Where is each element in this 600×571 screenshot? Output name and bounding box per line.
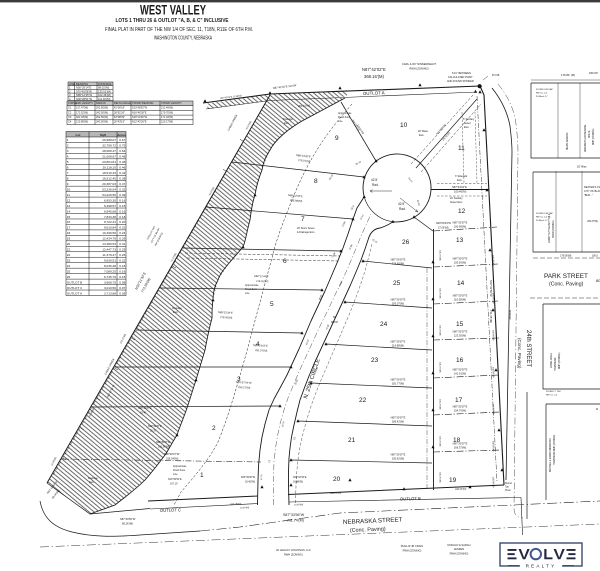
svg-text:10.00'(M): 10.00'(M) [240, 507, 250, 509]
svg-text:OUTLOT B: OUTLOT B [67, 280, 82, 284]
svg-text:0.75: 0.75 [119, 144, 125, 148]
svg-text:2: 2 [212, 425, 216, 432]
svg-text:5' Sanitary: 5' Sanitary [463, 118, 475, 121]
svg-text:CITY OF BLAIR: CITY OF BLAIR [584, 190, 600, 193]
svg-text:Rad.: Rad. [399, 207, 406, 211]
svg-text:S88°39'37"W: S88°39'37"W [164, 452, 180, 456]
svg-text:N87°30'07"E: N87°30'07"E [453, 442, 468, 446]
svg-text:22: 22 [359, 397, 367, 404]
svg-text:365.22'(M): 365.22'(M) [298, 103, 311, 108]
svg-text:"BUR...": "BUR..." [584, 194, 593, 197]
svg-text:CHORD LENGTH: CHORD LENGTH [161, 101, 182, 105]
svg-text:N12°42'26"E: N12°42'26"E [132, 120, 147, 124]
svg-text:6,745.79: 6,745.79 [104, 275, 116, 279]
svg-text:86.26'(M): 86.26'(M) [122, 522, 133, 526]
svg-text:8,722.31: 8,722.31 [104, 220, 116, 224]
svg-text:21: 21 [348, 437, 356, 444]
svg-text:Esm.: Esm. [419, 134, 425, 137]
svg-text:22: 22 [67, 253, 71, 257]
svg-text:0.22: 0.22 [119, 259, 125, 263]
svg-text:711.65'(M): 711.65'(M) [489, 310, 493, 323]
svg-text:Line: Line [338, 120, 343, 123]
svg-text:S02°18'33"E: S02°18'33"E [293, 476, 307, 479]
svg-text:RWH (ZONING): RWH (ZONING) [403, 549, 422, 553]
svg-text:WASHINGTON COUNTY, NEBRASKA: WASHINGTON COUNTY, NEBRASKA [154, 36, 212, 42]
svg-text:Drainage: Drainage [172, 307, 182, 310]
svg-text:N48°09'34"W: N48°09'34"W [436, 222, 452, 225]
svg-text:28°51'26": 28°51'26" [114, 110, 125, 114]
svg-text:53,236.54: 53,236.54 [102, 187, 116, 191]
svg-text:12: 12 [458, 208, 466, 215]
svg-text:141.20'(M): 141.20'(M) [439, 399, 441, 410]
svg-text:8: 8 [67, 177, 69, 181]
svg-text:Esm.: Esm. [173, 311, 179, 314]
svg-text:N87°30'07"E: N87°30'07"E [391, 340, 406, 344]
svg-text:160.06'(M): 160.06'(M) [492, 330, 494, 341]
svg-text:S29°10'02"W: S29°10'02"W [132, 115, 148, 119]
svg-text:1: 1 [67, 138, 69, 142]
svg-text:0.67: 0.67 [119, 138, 125, 142]
svg-text:Approximate: Approximate [173, 465, 187, 468]
svg-text:12,434.76: 12,434.76 [102, 237, 116, 241]
svg-text:3,010.56: 3,010.56 [104, 286, 116, 290]
svg-text:180.00': 180.00' [589, 71, 599, 75]
svg-text:AV LEGACY HOLDINGS, LLC: AV LEGACY HOLDINGS, LLC [276, 548, 311, 552]
svg-text:Sewer: Sewer [464, 122, 471, 125]
svg-text:RWH (ZONING): RWH (ZONING) [284, 553, 303, 557]
svg-text:Sqft: Sqft [100, 133, 106, 137]
svg-text:RMH (ZONING): RMH (ZONING) [593, 128, 595, 145]
svg-text:Approximate: Approximate [338, 112, 352, 115]
svg-text:21: 21 [67, 248, 71, 252]
svg-text:8.1C' BETWEEN: 8.1C' BETWEEN [452, 72, 471, 75]
svg-text:N16°46'28"E: N16°46'28"E [132, 110, 147, 114]
svg-text:16: 16 [456, 357, 464, 364]
svg-text:30 Block 17: 30 Block 17 [536, 220, 548, 222]
svg-text:11,379.27: 11,379.27 [102, 253, 116, 257]
svg-text:24th STREET: 24th STREET [525, 330, 531, 367]
svg-text:209.37'(M): 209.37'(M) [587, 221, 598, 223]
svg-text:20°43'15": 20°43'15" [114, 120, 125, 124]
svg-text:20,387.03: 20,387.03 [102, 182, 116, 186]
svg-text:CALCULATED POINT: CALCULATED POINT [448, 76, 473, 79]
svg-text:14: 14 [457, 280, 465, 287]
svg-text:25: 25 [393, 280, 401, 287]
svg-text:N87°34'02"E: N87°34'02"E [452, 185, 467, 189]
svg-text:S87°40'56"W: S87°40'56"W [120, 517, 136, 521]
svg-text:0.16: 0.16 [119, 198, 125, 202]
svg-text:63°08'39": 63°08'39" [114, 115, 125, 119]
svg-text:0.42: 0.42 [119, 171, 125, 175]
svg-text:42.5': 42.5' [398, 202, 405, 206]
svg-text:5: 5 [67, 160, 69, 164]
svg-text:322.33'(M): 322.33'(M) [76, 115, 88, 119]
svg-text:14: 14 [67, 209, 71, 213]
svg-text:3' Sidewalk: 3' Sidewalk [455, 175, 468, 178]
svg-text:0.29: 0.29 [119, 237, 125, 241]
svg-text:S88°39'37"W: S88°39'37"W [156, 441, 171, 444]
svg-text:JENSEN: JENSEN [454, 547, 464, 551]
svg-text:281.37'(M): 281.37'(M) [255, 348, 268, 353]
svg-text:C3: C3 [68, 115, 72, 119]
svg-text:23: 23 [67, 259, 71, 263]
svg-text:13,389.53: 13,389.53 [102, 242, 116, 246]
svg-text:110.08'(M): 110.08'(M) [454, 298, 466, 302]
svg-text:2: 2 [67, 144, 69, 148]
svg-text:293.27'(M): 293.27'(M) [238, 385, 251, 390]
svg-text:6,953.30: 6,953.30 [104, 198, 116, 202]
svg-text:MICHAEL & DAWN ANDERSON: MICHAEL & DAWN ANDERSON [549, 438, 552, 472]
svg-text:Line: Line [245, 292, 250, 295]
svg-text:C1: C1 [68, 106, 72, 110]
svg-text:Flood Zone: Flood Zone [173, 469, 186, 472]
svg-text:LOTS 1 THRU 26 & OUTLOT "A, B,: LOTS 1 THRU 26 & OUTLOT "A, B, & C" INCL… [116, 18, 229, 24]
svg-text:133.51'(M): 133.51'(M) [98, 89, 111, 93]
svg-text:FOUND DM CAP: FOUND DM CAP [536, 88, 553, 91]
svg-text:141.01'(M): 141.01'(M) [454, 372, 466, 376]
svg-text:Esm.: Esm. [89, 481, 95, 484]
svg-text:42.5': 42.5' [371, 178, 378, 182]
svg-text:9,630.51: 9,630.51 [104, 259, 116, 263]
svg-text:Esm.: Esm. [284, 122, 290, 125]
svg-text:18.40'(M): 18.40'(M) [245, 481, 255, 484]
svg-text:0.38: 0.38 [119, 177, 125, 181]
svg-text:FOUND 1" DM: FOUND 1" DM [546, 391, 561, 393]
svg-text:LINE: LINE [69, 82, 75, 86]
svg-text:100.26'(M): 100.26'(M) [454, 261, 466, 265]
svg-text:OUTLOT A: OUTLOT A [363, 90, 385, 96]
svg-text:50': 50' [333, 315, 337, 319]
svg-text:Approximate: Approximate [245, 284, 259, 287]
svg-text:10,499.56: 10,499.56 [102, 231, 116, 235]
svg-text:711.74'(M): 711.74'(M) [287, 519, 304, 523]
svg-text:0.20: 0.20 [119, 220, 125, 224]
svg-text:RWH (ZONING): RWH (ZONING) [450, 552, 469, 556]
svg-text:Sewer Esm.: Sewer Esm. [450, 201, 463, 204]
svg-text:80'ROW: 80'ROW [508, 310, 511, 320]
svg-text:9: 9 [335, 135, 339, 142]
svg-text:0.29: 0.29 [119, 248, 125, 252]
svg-text:6: 6 [67, 166, 69, 170]
svg-text:N13°59'52"E: N13°59'52"E [168, 478, 182, 481]
svg-text:20,118.20: 20,118.20 [102, 166, 116, 170]
svg-text:DEXTER'S 1ST ADD: DEXTER'S 1ST ADD [584, 186, 600, 189]
svg-text:N87°30'07"E: N87°30'07"E [391, 378, 406, 382]
svg-text:98.02'(M): 98.02'(M) [98, 86, 109, 90]
svg-text:TOWNSEND RMH (ZONING): TOWNSEND RMH (ZONING) [554, 434, 556, 465]
svg-text:Esm.: Esm. [457, 179, 463, 182]
svg-text:(Conc. Paving): (Conc. Paving) [517, 338, 522, 369]
svg-text:111.32'(M): 111.32'(M) [98, 97, 110, 101]
svg-text:10: 10 [67, 187, 71, 191]
svg-text:0.48: 0.48 [119, 160, 125, 164]
svg-text:13: 13 [67, 204, 71, 208]
svg-text:141.20'(M): 141.20'(M) [439, 288, 441, 299]
svg-text:27.05'(M): 27.05'(M) [438, 227, 449, 230]
svg-text:80: 80 [596, 278, 600, 283]
svg-text:CARL & WY NINNERFELDT: CARL & WY NINNERFELDT [402, 62, 437, 66]
svg-text:Rad.: Rad. [372, 183, 379, 187]
svg-text:Round: Round [505, 483, 512, 485]
svg-text:170.70'(M): 170.70'(M) [161, 110, 173, 114]
svg-text:20' Alley: 20' Alley [577, 165, 587, 169]
svg-text:7: 7 [67, 171, 69, 175]
svg-text:141.20'(M): 141.20'(M) [439, 362, 441, 373]
svg-text:176.84' (M): 176.84' (M) [561, 73, 575, 77]
svg-text:ARC LENGTH: ARC LENGTH [76, 101, 93, 105]
svg-text:174.60'(M): 174.60'(M) [392, 262, 404, 266]
svg-text:20,864.81: 20,864.81 [102, 160, 116, 164]
svg-text:(Conc. Paving): (Conc. Paving) [549, 282, 584, 288]
svg-text:CHORD BEARING: CHORD BEARING [132, 101, 154, 105]
svg-text:23: 23 [371, 357, 379, 364]
svg-text:NOLTE: NOLTE [589, 130, 591, 138]
svg-text:180.0: 180.0 [592, 255, 599, 258]
svg-text:20' Storm Sewer: 20' Storm Sewer [297, 227, 315, 230]
svg-text:57.76': 57.76' [261, 473, 263, 480]
svg-text:25: 25 [67, 269, 71, 273]
svg-text:21,008.67: 21,008.67 [102, 155, 116, 159]
svg-text:24: 24 [67, 264, 71, 268]
svg-text:15: 15 [67, 215, 71, 219]
svg-text:141.20'(M): 141.20'(M) [439, 325, 441, 336]
svg-text:123.85'(M): 123.85'(M) [76, 120, 88, 124]
svg-text:Flood Zone: Flood Zone [245, 288, 258, 291]
svg-text:0.22: 0.22 [119, 226, 125, 230]
svg-text:TOWNSEND: TOWNSEND [555, 357, 557, 371]
svg-text:0.32: 0.32 [119, 187, 125, 191]
svg-text:19: 19 [67, 237, 71, 241]
svg-text:N87°30'07"E: N87°30'07"E [391, 298, 406, 302]
svg-text:0.09: 0.09 [119, 291, 125, 295]
svg-text:N87°42'02"E: N87°42'02"E [362, 67, 386, 72]
svg-text:RWH (ZONING): RWH (ZONING) [409, 67, 428, 71]
svg-text:0.48: 0.48 [119, 155, 125, 159]
svg-text:12: 12 [67, 198, 71, 202]
svg-text:Drainage: Drainage [283, 118, 293, 121]
svg-text:0.07: 0.07 [119, 286, 125, 290]
svg-text:N88°23'42"E: N88°23'42"E [253, 343, 268, 348]
svg-text:LOREL WILLA: LOREL WILLA [550, 353, 553, 368]
svg-text:10: 10 [400, 122, 408, 129]
svg-text:28,089.47: 28,089.47 [102, 149, 116, 153]
svg-text:4: 4 [67, 155, 69, 159]
svg-text:123.30'(M): 123.30'(M) [454, 334, 466, 338]
svg-text:292.50'(M): 292.50'(M) [96, 115, 108, 119]
svg-text:6,498.57: 6,498.57 [104, 204, 116, 208]
svg-text:368.16'(M): 368.16'(M) [364, 74, 384, 79]
svg-text:AND FOUND SPINNER: AND FOUND SPINNER [447, 80, 474, 83]
svg-text:17: 17 [455, 397, 463, 404]
svg-text:217.47'(M): 217.47'(M) [76, 106, 88, 110]
svg-text:18.88'(M): 18.88'(M) [293, 481, 303, 484]
svg-text:7,833.38: 7,833.38 [104, 215, 116, 219]
svg-text:20' Sanitary: 20' Sanitary [450, 197, 463, 200]
svg-text:N87°30'07"E: N87°30'07"E [391, 453, 406, 457]
svg-text:N89°12'35"W: N89°12'35"W [76, 93, 92, 97]
svg-text:166.37'(M): 166.37'(M) [454, 446, 466, 450]
svg-text:35.37': 35.37' [150, 430, 157, 433]
svg-text:PARK STREET: PARK STREET [544, 273, 588, 280]
svg-text:S88°22'34"E: S88°22'34"E [254, 274, 269, 278]
svg-text:WEST VALLEY: WEST VALLEY [140, 2, 206, 18]
svg-text:342.50'(M): 342.50'(M) [96, 120, 108, 124]
svg-text:0.16: 0.16 [119, 209, 125, 213]
svg-text:8,036.28: 8,036.28 [104, 264, 116, 268]
svg-text:0.46: 0.46 [119, 166, 125, 170]
svg-text:20' Water: 20' Water [418, 130, 428, 133]
svg-text:0.26: 0.26 [119, 253, 125, 257]
svg-text:& Drainage Esm.: & Drainage Esm. [297, 231, 315, 234]
svg-text:N87°30'07"E: N87°30'07"E [391, 416, 406, 420]
svg-text:13: 13 [456, 237, 464, 244]
svg-text:183.07'(M): 183.07'(M) [392, 302, 404, 306]
svg-text:0.39: 0.39 [119, 193, 125, 197]
svg-text:HEIRS JENKINS: HEIRS JENKINS [567, 132, 569, 150]
svg-text:114.98'(M): 114.98'(M) [392, 344, 404, 348]
svg-text:FINAL PLAT IN PART OF THE NW 1: FINAL PLAT IN PART OF THE NW 1/4 OF SEC.… [105, 27, 253, 33]
svg-text:RW Co. Lot: RW Co. Lot [536, 92, 548, 95]
svg-text:141.20'(M): 141.20'(M) [439, 436, 441, 447]
svg-text:C2: C2 [68, 110, 72, 114]
svg-text:3,713.88: 3,713.88 [104, 291, 116, 295]
svg-text:C4: C4 [68, 120, 72, 124]
svg-text:N87°30'07"E: N87°30'07"E [453, 405, 468, 409]
svg-text:N88°22'34"E: N88°22'34"E [218, 310, 233, 315]
svg-text:S63°39'30"W: S63°39'30"W [241, 476, 256, 479]
svg-text:7,089.25: 7,089.25 [104, 269, 116, 273]
svg-text:123.17'(M): 123.17'(M) [161, 120, 173, 124]
svg-text:316.34'(M): 316.34'(M) [166, 457, 178, 461]
svg-text:N87°30'07"E: N87°30'07"E [453, 368, 468, 372]
svg-text:OUTLOT B: OUTLOT B [400, 496, 421, 502]
svg-text:N02°49'37"E: N02°49'37"E [148, 425, 162, 428]
svg-text:16,512.45: 16,512.45 [102, 177, 116, 181]
svg-text:LARRY SUTTLE BETTY A &: LARRY SUTTLE BETTY A & [548, 213, 551, 243]
svg-text:190.62'(M): 190.62'(M) [392, 457, 404, 461]
svg-text:N87°30'07"E: N87°30'07"E [453, 221, 468, 225]
svg-text:16: 16 [67, 220, 71, 224]
svg-text:S87°33'56"W: S87°33'56"W [283, 513, 305, 517]
svg-text:102.46'(M): 102.46'(M) [98, 93, 111, 97]
svg-text:141.20'(M): 141.20'(M) [439, 250, 441, 261]
svg-text:212.49'(M): 212.49'(M) [161, 106, 173, 110]
svg-text:0.18: 0.18 [119, 264, 125, 268]
svg-text:1: 1 [200, 472, 204, 479]
svg-text:Lot: Lot [76, 133, 81, 137]
svg-text:171.33'(M): 171.33'(M) [161, 115, 173, 119]
svg-text:Esm.: Esm. [464, 126, 470, 129]
svg-text:172.52'(M): 172.52'(M) [76, 110, 88, 114]
svg-text:P.O.B.: P.O.B. [492, 73, 500, 77]
svg-text:10.00'(M): 10.00'(M) [294, 504, 304, 506]
svg-text:141.20'(M): 141.20'(M) [439, 472, 441, 483]
svg-text:54,229.56: 54,229.56 [102, 193, 116, 197]
svg-text:N46°28'51"W: N46°28'51"W [76, 97, 92, 101]
svg-text:24: 24 [380, 321, 388, 328]
svg-text:9: 9 [67, 182, 69, 186]
svg-text:160.06'(M): 160.06'(M) [492, 441, 494, 452]
svg-text:26: 26 [402, 239, 410, 246]
svg-text:0.24: 0.24 [119, 231, 125, 235]
svg-text:19: 19 [449, 477, 457, 484]
svg-text:S70°45'08"W: S70°45'08"W [76, 89, 92, 93]
svg-text:278.05'(M): 278.05'(M) [256, 279, 269, 283]
svg-text:DONALD & SARAH: DONALD & SARAH [448, 543, 471, 547]
svg-text:26: 26 [67, 275, 71, 279]
svg-text:9,610.84: 9,610.84 [104, 226, 116, 230]
svg-text:278.05'(M): 278.05'(M) [220, 315, 233, 320]
svg-text:ROW: ROW [331, 320, 338, 324]
svg-text:100.46'(M): 100.46'(M) [454, 190, 466, 194]
svg-text:12,447.73: 12,447.73 [102, 248, 116, 252]
svg-text:3,668.75: 3,668.75 [104, 280, 116, 284]
svg-text:RADIUS: RADIUS [96, 101, 106, 105]
svg-text:292.50'(M): 292.50'(M) [96, 106, 108, 110]
svg-text:32,799.72: 32,799.72 [102, 144, 116, 148]
svg-text:RMH (ZONING): RMH (ZONING) [559, 352, 561, 369]
svg-text:183.23'(M): 183.23'(M) [455, 488, 467, 491]
svg-text:160.06'(M): 160.06'(M) [492, 404, 494, 415]
svg-text:DISTANCE: DISTANCE [98, 82, 112, 86]
svg-text:JEREMIAH & ROSEANNE: JEREMIAH & ROSEANNE [584, 124, 587, 152]
svg-text:RW Co. Lot: RW Co. Lot [546, 394, 558, 397]
svg-text:BEARING: BEARING [76, 82, 88, 86]
svg-text:20: 20 [333, 476, 341, 483]
svg-text:316.34'(M): 316.34'(M) [158, 446, 170, 449]
svg-text:REALTY: REALTY [526, 563, 557, 568]
svg-text:107.10': 107.10' [170, 483, 178, 486]
svg-text:342.50'(M): 342.50'(M) [96, 110, 108, 114]
svg-text:OUTLOT C: OUTLOT C [160, 507, 181, 513]
svg-text:17: 17 [67, 226, 71, 230]
svg-text:20: 20 [67, 242, 71, 246]
svg-text:OUTLOT C: OUTLOT C [67, 286, 83, 290]
svg-text:0.31: 0.31 [119, 242, 125, 246]
svg-text:6,945.68: 6,945.68 [104, 209, 116, 213]
svg-text:42°36'18": 42°36'18" [114, 106, 125, 110]
svg-text:Drainage: Drainage [88, 477, 98, 480]
svg-text:0.15: 0.15 [119, 275, 125, 279]
svg-text:S02°33'59"W: S02°33'59"W [489, 280, 493, 297]
svg-text:8: 8 [314, 178, 318, 185]
svg-text:S23°38'52"W: S23°38'52"W [132, 106, 148, 110]
svg-text:186.42'(M): 186.42'(M) [392, 420, 404, 424]
svg-text:154.70'(M): 154.70'(M) [454, 409, 466, 413]
svg-text:0.08: 0.08 [119, 280, 125, 284]
svg-text:0.16: 0.16 [119, 269, 125, 273]
svg-text:Flood Zone: Flood Zone [338, 116, 351, 119]
svg-text:N87°30'07"E: N87°30'07"E [453, 330, 468, 334]
svg-text:179.08'(M): 179.08'(M) [560, 255, 572, 258]
svg-text:160.06'(M): 160.06'(M) [492, 477, 494, 488]
svg-text:DELTA ANGLE: DELTA ANGLE [114, 101, 131, 105]
svg-text:18: 18 [67, 231, 71, 235]
svg-text:160.06'(M): 160.06'(M) [492, 367, 494, 378]
svg-text:33.40': 33.40' [140, 412, 147, 415]
svg-text:0.18: 0.18 [119, 215, 125, 219]
svg-text:Pinon: Pinon [505, 490, 512, 492]
svg-text:30 Block 17: 30 Block 17 [536, 96, 548, 98]
svg-text:N87°30'07"E: N87°30'07"E [453, 294, 468, 298]
svg-text:HANN (ZONING): HANN (ZONING) [552, 220, 555, 238]
svg-text:7: 7 [301, 216, 305, 223]
svg-text:0.64: 0.64 [119, 149, 125, 153]
svg-text:15: 15 [456, 321, 464, 328]
svg-text:3: 3 [67, 149, 69, 153]
svg-text:11: 11 [458, 145, 465, 152]
svg-text:N03°39'37"E: N03°39'37"E [138, 407, 152, 410]
